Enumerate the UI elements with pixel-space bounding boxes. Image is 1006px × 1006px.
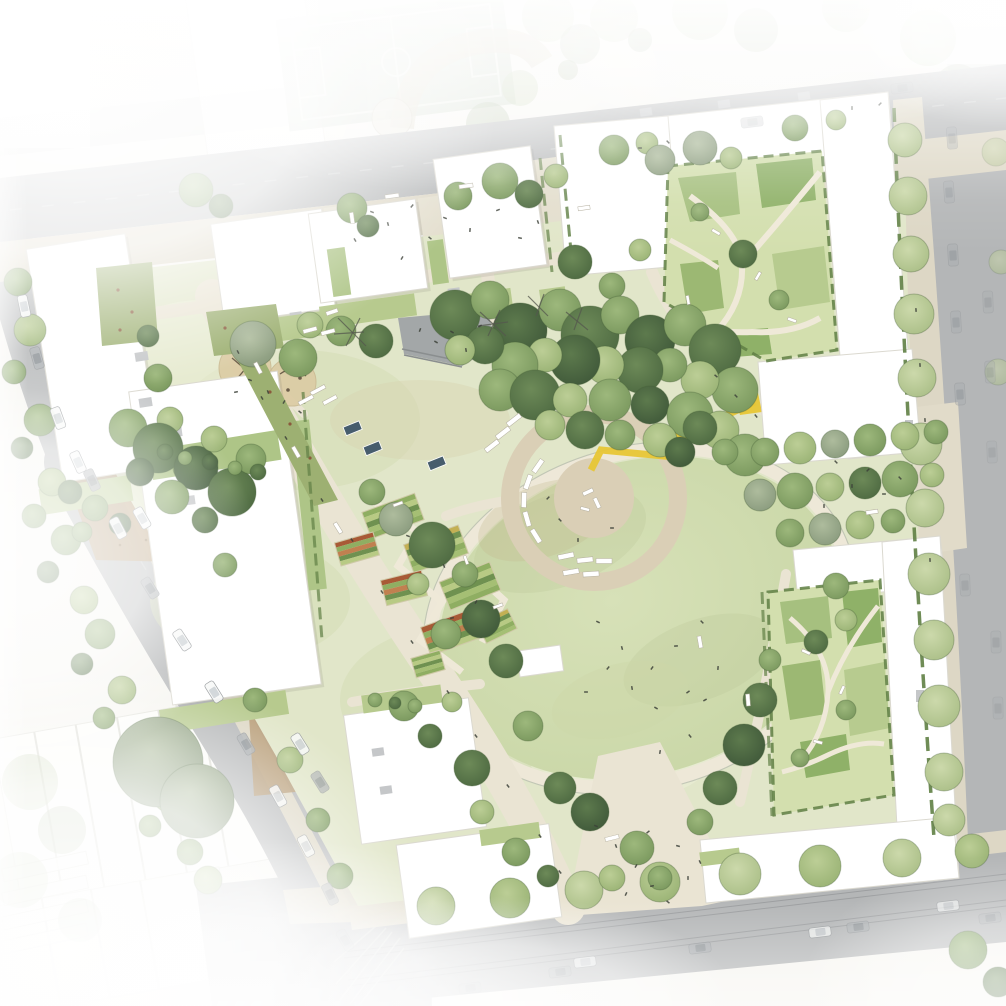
person — [929, 558, 931, 562]
entry-canopy — [372, 747, 385, 757]
car-roof — [984, 297, 992, 307]
tree — [513, 711, 543, 741]
tree — [620, 831, 654, 865]
tree — [712, 439, 738, 465]
tree — [379, 502, 413, 536]
tree — [908, 553, 950, 595]
bench — [745, 694, 750, 706]
tree — [925, 753, 963, 791]
tree — [537, 865, 559, 887]
tree — [898, 359, 936, 397]
tree — [849, 467, 881, 499]
tree — [804, 630, 828, 654]
tree — [920, 463, 944, 487]
car — [991, 631, 1001, 653]
person — [610, 527, 614, 529]
car-roof — [956, 389, 964, 399]
tree — [431, 619, 461, 649]
car-roof — [994, 703, 1001, 713]
tree — [854, 424, 886, 456]
person — [882, 493, 886, 495]
bench — [583, 571, 599, 577]
person — [924, 418, 926, 422]
tree — [776, 519, 804, 547]
tree — [712, 367, 758, 413]
car — [985, 361, 996, 383]
tree — [723, 724, 765, 766]
car — [983, 291, 994, 313]
person — [687, 876, 689, 880]
tree — [599, 865, 625, 891]
tree — [835, 609, 857, 631]
tree — [631, 386, 669, 424]
tree — [933, 804, 965, 836]
car-roof — [961, 580, 969, 590]
car-roof — [988, 447, 996, 457]
person — [584, 691, 588, 693]
tree — [566, 411, 604, 449]
tree — [719, 853, 761, 895]
bench — [521, 492, 527, 507]
tree — [571, 793, 609, 831]
site-plan-rendering — [0, 0, 1006, 1006]
tree — [599, 273, 625, 299]
tree — [418, 724, 442, 748]
entry-canopy — [380, 785, 393, 795]
raingarden-plant — [288, 422, 291, 425]
tree — [445, 335, 475, 365]
tree — [894, 294, 934, 334]
car-roof — [992, 637, 999, 647]
tree — [368, 693, 382, 707]
car-roof — [986, 367, 994, 377]
tree — [924, 420, 948, 444]
tree — [535, 410, 565, 440]
masterplan-figure — [0, 0, 1006, 1006]
tree — [502, 838, 530, 866]
tree — [918, 685, 960, 727]
tree — [906, 489, 944, 527]
tree — [250, 464, 266, 480]
tree — [881, 509, 905, 533]
car — [954, 383, 965, 405]
tree — [744, 479, 776, 511]
car-roof — [952, 317, 960, 327]
tree — [408, 699, 422, 713]
tree — [359, 479, 385, 505]
tree — [452, 561, 478, 587]
tree — [544, 772, 576, 804]
car — [950, 311, 961, 333]
tree — [809, 513, 841, 545]
tree — [821, 430, 849, 458]
tree — [687, 809, 713, 835]
tree — [489, 644, 523, 678]
tree — [359, 324, 393, 358]
tree — [665, 437, 695, 467]
tree — [442, 692, 462, 712]
tree — [823, 573, 849, 599]
tree — [777, 473, 813, 509]
tree — [816, 473, 844, 501]
tree — [799, 845, 841, 887]
tree — [836, 700, 856, 720]
tree — [891, 422, 919, 450]
plan-layers — [0, 0, 1006, 1006]
tree — [769, 290, 789, 310]
tree — [470, 800, 494, 824]
car — [993, 697, 1003, 719]
tree — [454, 750, 490, 786]
tree — [409, 522, 455, 568]
person — [851, 484, 853, 488]
play-equipment — [286, 388, 290, 392]
tree — [407, 573, 429, 595]
tree — [759, 649, 781, 671]
tree — [605, 420, 635, 450]
person — [577, 538, 579, 542]
car — [960, 574, 971, 596]
tree — [703, 771, 737, 805]
tree — [784, 432, 816, 464]
fade-left-edge — [0, 0, 28, 1006]
car — [987, 441, 998, 463]
tree — [751, 438, 779, 466]
tree — [791, 749, 809, 767]
person — [919, 363, 921, 367]
person — [915, 308, 917, 312]
tree — [846, 511, 874, 539]
person — [823, 504, 825, 508]
bench — [596, 559, 612, 564]
tree — [389, 697, 401, 709]
tree — [914, 620, 954, 660]
courtyard-planting — [844, 662, 890, 736]
